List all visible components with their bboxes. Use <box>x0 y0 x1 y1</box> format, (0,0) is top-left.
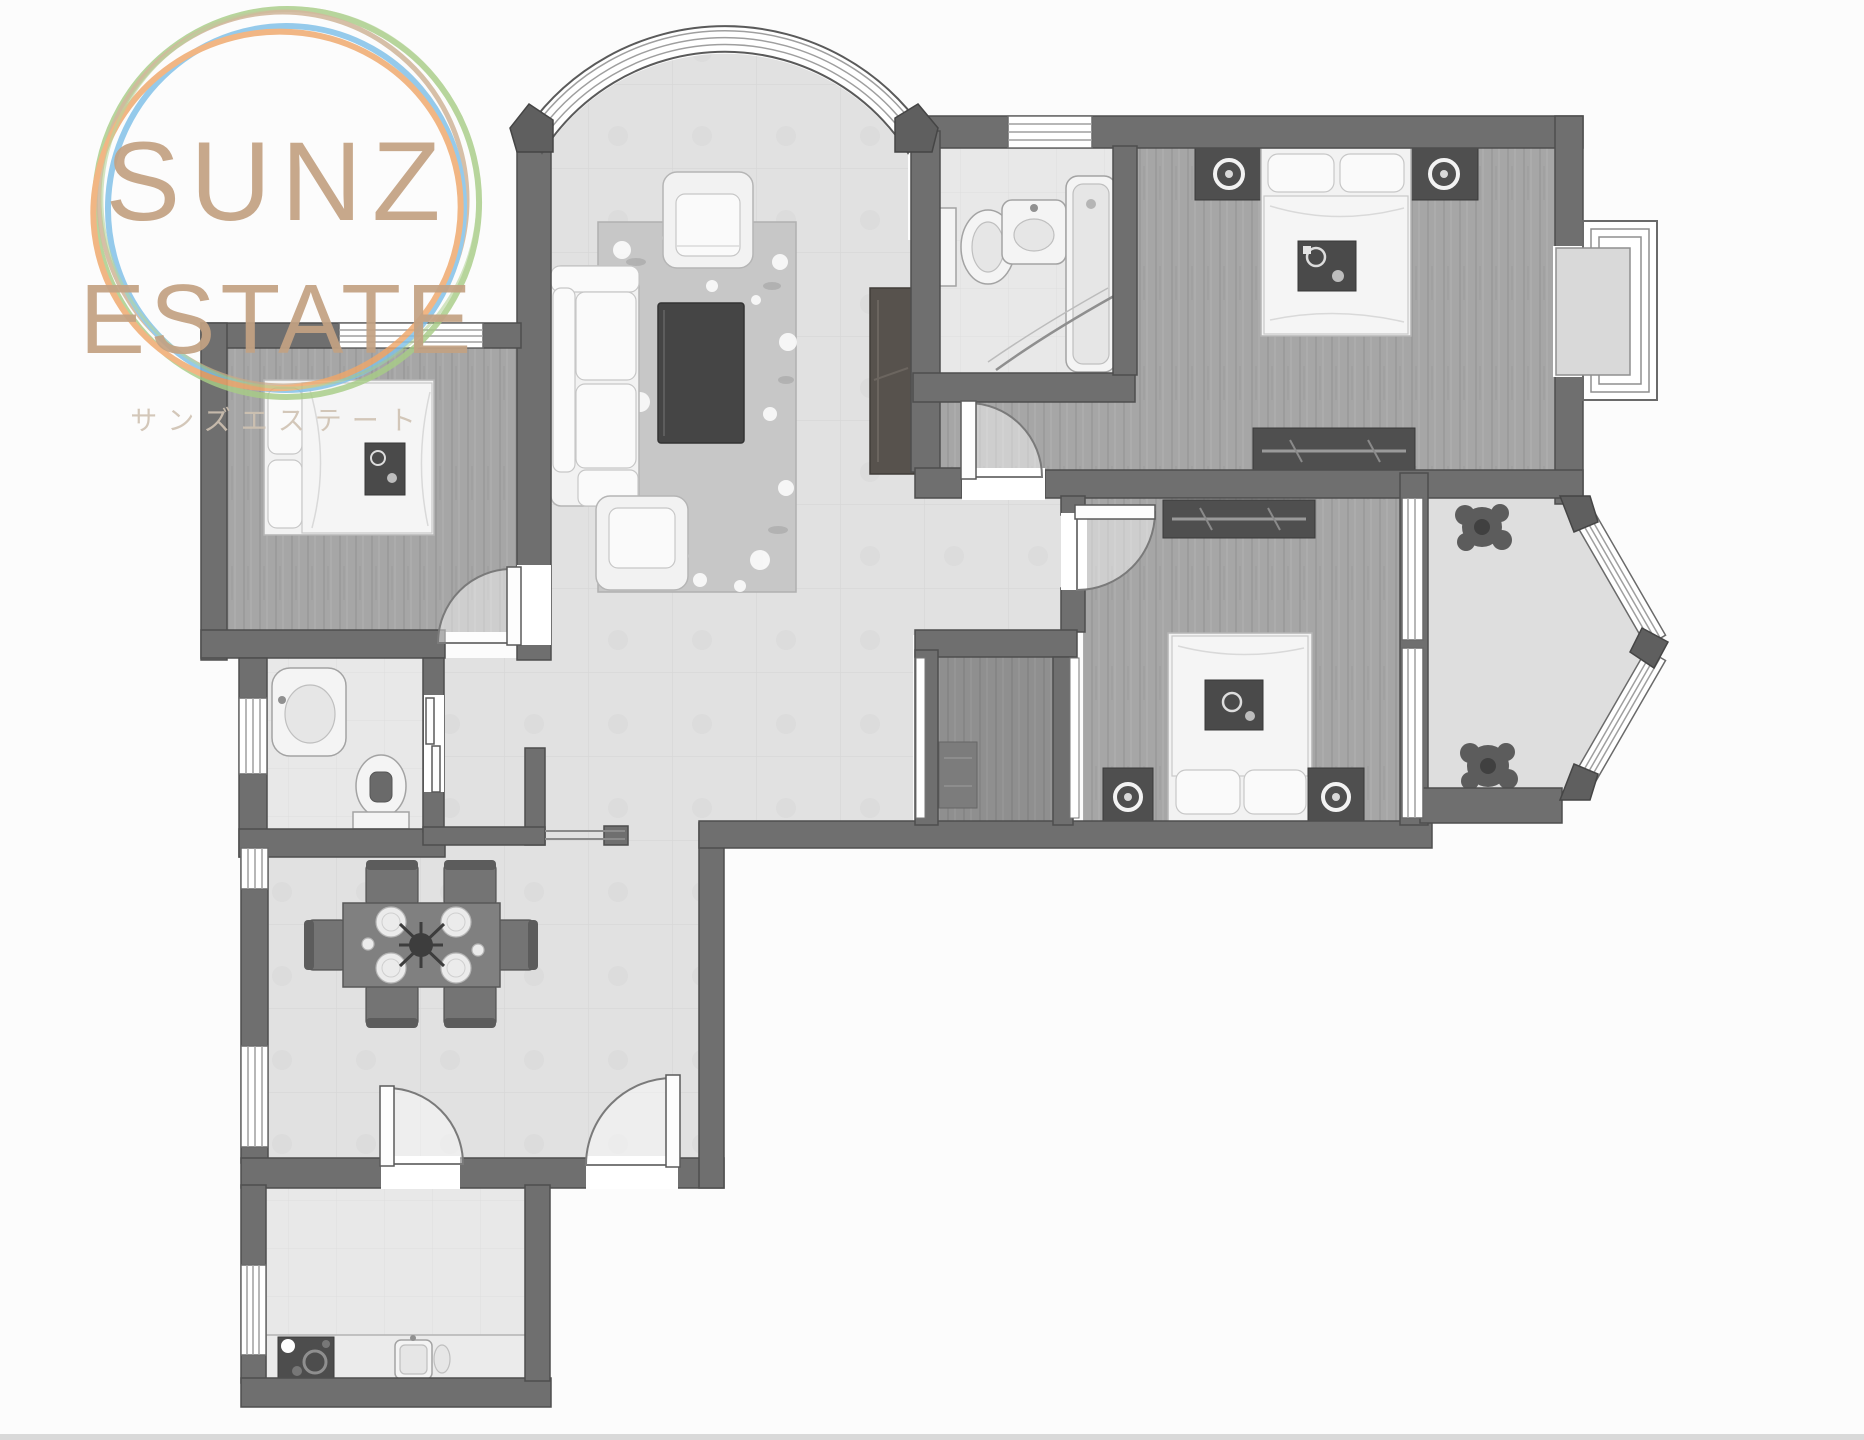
footer-strip <box>0 1434 1864 1440</box>
pillow <box>1244 770 1306 814</box>
slider-bathroom-left <box>424 695 444 792</box>
left-bedroom <box>264 380 434 535</box>
floorplan-page: SUNZ ESTATE サンズエステート <box>0 0 1864 1440</box>
wall-kitchen-south <box>241 1378 551 1407</box>
chair-back <box>366 860 418 870</box>
window-bathleft <box>239 698 267 774</box>
window-dining-a <box>241 848 268 889</box>
rail-cap <box>604 826 628 845</box>
storage-shelf <box>939 742 977 808</box>
sofa <box>551 266 639 506</box>
chair-back <box>528 920 538 970</box>
bathtub <box>1066 176 1116 372</box>
armchair-top <box>663 172 753 268</box>
window-bedroom2-glass-b <box>1402 648 1423 818</box>
wall-south-b <box>456 1158 590 1188</box>
floor-plan <box>0 0 1864 1440</box>
box-window-bedroom1 <box>1553 221 1657 400</box>
pillow <box>268 388 302 454</box>
chair-back <box>444 860 496 870</box>
toilet <box>353 755 409 829</box>
pillow <box>1268 154 1334 192</box>
armchair-bottom <box>596 496 688 590</box>
chair <box>366 864 418 906</box>
window-bathtop <box>1008 116 1092 148</box>
wall-bathtop-east <box>1113 146 1137 375</box>
kitchen <box>266 1335 528 1382</box>
tv-console <box>870 288 914 474</box>
chair-back <box>366 1018 418 1028</box>
wall-bath-south <box>239 829 445 857</box>
window-bedroom2-glass-a <box>1402 498 1423 640</box>
pillow <box>1340 154 1404 192</box>
wall-sunroom-south <box>1420 788 1562 823</box>
window-leftbed <box>339 323 483 348</box>
chair-back <box>444 1018 496 1028</box>
slider-storage-east <box>1070 658 1079 818</box>
wall-alcove-stub <box>915 468 962 498</box>
wall-kitchen-east <box>525 1185 550 1381</box>
wall-living-east <box>911 131 940 472</box>
wall-bathtop-south <box>913 373 1135 402</box>
bed-tray <box>1298 241 1356 291</box>
wall-leftbed-west <box>201 323 227 660</box>
speaker-dot <box>1124 793 1132 801</box>
speaker-dot <box>1332 793 1340 801</box>
wall-bedroom-divider <box>1045 470 1583 498</box>
vanity-sink <box>272 668 346 756</box>
sink <box>1002 200 1066 264</box>
wall-south-a <box>241 1158 385 1188</box>
wall-hall-east <box>699 823 724 1188</box>
speaker-dot <box>1225 170 1233 178</box>
coffee-table <box>658 303 744 443</box>
storage-closet <box>939 742 977 808</box>
bed-tray <box>1205 680 1263 730</box>
window-kitchen <box>241 1265 266 1355</box>
wardrobe <box>1163 500 1315 538</box>
wall-storage-top <box>915 630 1077 657</box>
table-centerpiece <box>399 922 444 968</box>
bed-tray <box>365 443 405 495</box>
slider-storage-west <box>916 658 925 818</box>
wall-alcove-east-b <box>1061 588 1085 632</box>
bedroom1-bench <box>1253 428 1415 474</box>
pillow <box>1176 770 1240 814</box>
chair-back <box>304 920 314 970</box>
chair <box>444 864 496 906</box>
stove-cooktop <box>278 1337 334 1380</box>
pillow <box>268 460 302 528</box>
speaker-dot <box>1440 170 1448 178</box>
wall-hall-ledge <box>423 827 545 845</box>
wall-bed-bath-divider <box>201 630 445 658</box>
window-dining-b <box>241 1046 268 1147</box>
